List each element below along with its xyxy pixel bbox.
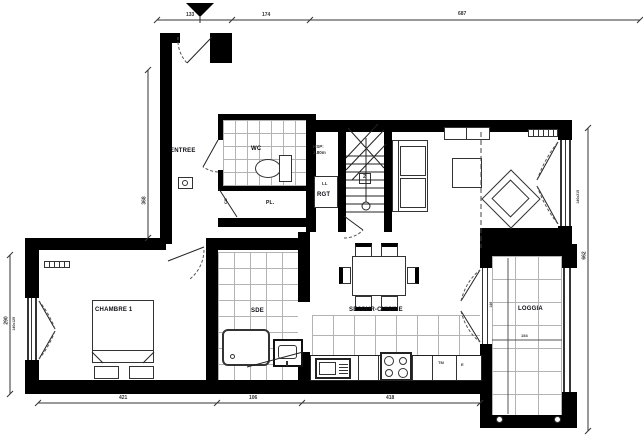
loggia-door-frame [487,268,488,344]
wall-wc-left-lower [218,170,223,186]
dining-chair [339,267,351,284]
nightstand [94,366,119,379]
stairs-number-label: 2 [363,175,366,180]
wall-loggia-west-top [480,228,492,268]
bed-fold-line [93,350,153,351]
cooktop-burner [398,368,408,378]
ceiling-height-value: 1.80m [313,151,326,156]
room-label-rangement: RGT [317,192,330,198]
wall-stairs-east [384,126,392,232]
radiator-chambre [44,261,70,268]
sofa-cushion [400,178,426,208]
room-label-wc: WC [251,146,261,152]
room-label-chambre1: CHAMBRE 1 [95,307,132,313]
shower-tray [222,329,270,366]
wall-stairs-west [338,126,346,232]
window-left-frame [27,298,29,360]
room-label-sejour-cuisine: SEJOUR-CUISINE [349,307,403,313]
kitchen-e-label: E [461,363,464,367]
dim-left-chambre: 290 [5,316,10,324]
window-left-frame [31,298,32,360]
dim-left-entree: 368 [143,196,148,204]
water-heater-label: CE [224,198,228,204]
counter-divider [358,356,359,380]
room-label-placard: PL. [266,201,274,206]
washbasin-sde-bowl [278,345,297,359]
wall-wc-left-upper [218,120,223,140]
cooktop-burner [384,356,394,366]
dim-loggia-width: 154 [521,334,528,338]
radiator-sejour [528,129,558,137]
room-label-sde: SDE [251,308,264,314]
window-right-frame [565,140,566,226]
counter-divider [456,356,457,380]
wall-placard-bottom [218,218,316,227]
kitchen-floor-tiles [312,315,480,355]
dim-top-mid: 174 [262,13,270,18]
wall-entry-top-corner [160,33,180,43]
nightstand [129,366,154,379]
stairs [346,124,386,212]
cooktop-burner [399,357,407,365]
dim-bottom-chambre: 421 [119,396,127,401]
washing-machine-label: LL [322,182,328,187]
dining-table [352,256,406,296]
floor-plan: ENTREE WC PL. CE HSP: 1.80m LL RGT 2 CHA… [0,0,643,448]
wall-entry-pillar [210,33,232,63]
counter-divider [378,356,379,380]
wall-loggia-east-top [562,244,577,268]
loggia-door-frame [482,268,483,344]
window-left-frame [35,298,37,360]
oven-vents [339,362,348,375]
loggia-drain [496,416,503,423]
dim-loggia-side: 146 [490,302,494,308]
wall-right-upper [558,120,572,140]
wall-corridor-bottom-right [206,238,306,250]
wall-wc-top [218,114,316,120]
sideboard [444,127,490,140]
wall-chambre-east [206,250,218,380]
window-right-frame [560,140,562,226]
dining-chair [407,267,419,284]
wall-entry-west [160,33,172,244]
washbasin-sde-tap [286,361,288,366]
sideboard-divider [466,128,467,139]
wall-bottom-main [25,380,492,394]
dim-bottom-sde: 106 [249,396,257,401]
wall-wc-bottom [218,186,316,191]
window-right-spec: 140x215 [577,190,581,204]
loggia-drain [554,416,561,423]
shower-drain [230,354,235,359]
kitchen-tm-label: TM [438,361,444,365]
oven-door [319,362,336,375]
room-label-entree: ENTREE [170,148,196,154]
wall-loggia-north [482,228,572,256]
wall-corridor-bottom-left [25,238,166,250]
counter-divider [432,356,433,380]
cooktop-burner [385,369,393,377]
dim-top-left: 133 [186,13,194,18]
window-right-frame [569,140,571,226]
dim-top-right: 687 [458,12,466,17]
sofa-cushion [400,146,426,176]
loggia-glazing-frame [569,268,571,392]
loggia-glazing-frame [563,268,565,392]
counter-divider [412,356,413,380]
toilet-bowl [255,159,281,178]
toilet-tank [279,155,292,182]
room-label-loggia: LOGGIA [518,306,543,312]
wall-sde-east-upper [298,232,310,302]
dim-right-total: 662 [583,251,588,259]
ceiling-height-label: HSP: [313,145,324,150]
wall-chambre-west-upper [25,238,39,298]
washbasin-entree-tap [182,180,188,186]
window-left-spec: 140x125 [13,317,17,331]
dim-bottom-cuisine: 418 [386,396,394,401]
coffee-table [452,158,482,188]
sofa-back-line [398,141,399,211]
